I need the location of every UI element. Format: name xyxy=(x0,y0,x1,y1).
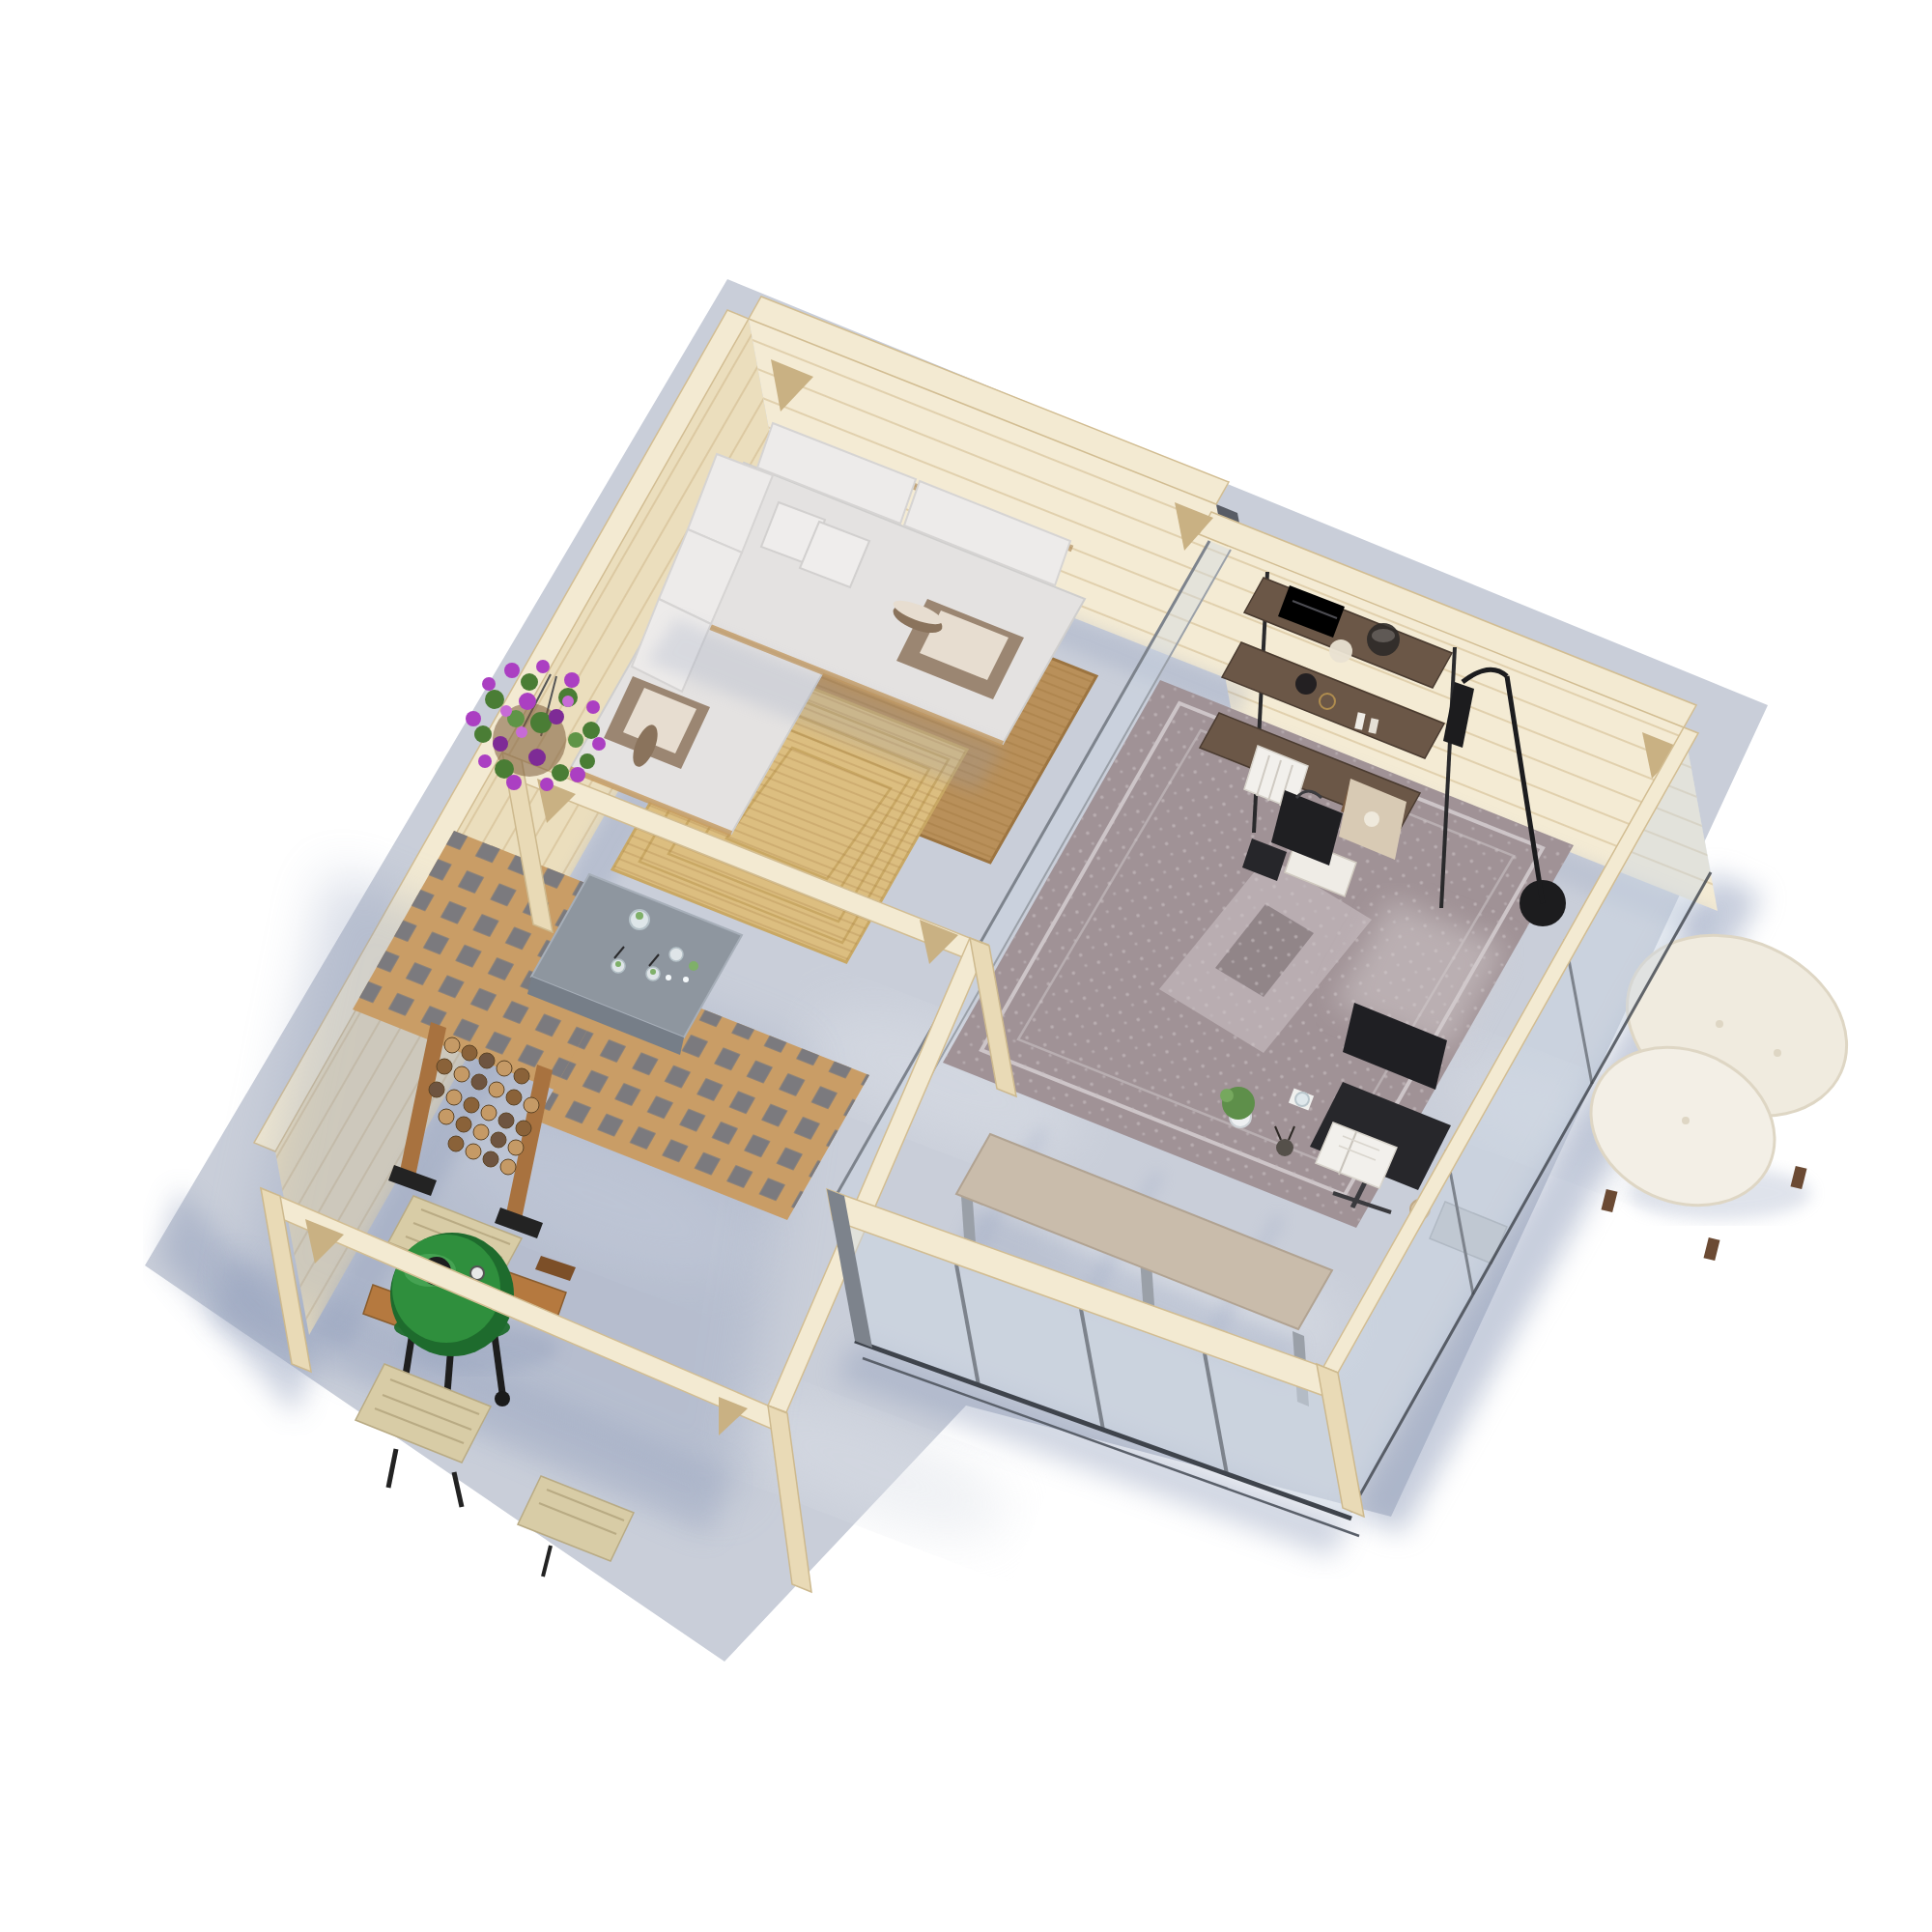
tuft xyxy=(1774,1049,1781,1057)
water-glass xyxy=(1295,1093,1309,1106)
grill-thermometer xyxy=(470,1266,484,1280)
ice-cube xyxy=(666,975,671,980)
lime-wedge xyxy=(689,961,698,971)
plant-leaf xyxy=(1220,1089,1234,1102)
render-canvas xyxy=(0,0,1932,1932)
black-vase xyxy=(1295,673,1317,695)
armchair-leg xyxy=(1602,1189,1618,1212)
glass-bowl-rim xyxy=(1372,629,1395,642)
bag-logo xyxy=(1364,811,1379,827)
pencil-cup xyxy=(1276,1139,1293,1156)
chair-leg xyxy=(543,1546,551,1577)
tuft xyxy=(1682,1117,1690,1124)
ice-cube xyxy=(683,977,689,982)
garden-house-aerial-render xyxy=(0,0,1932,1932)
tuft xyxy=(1716,1020,1723,1028)
lime-in-glass xyxy=(650,969,656,975)
pampas-vase xyxy=(1329,639,1352,663)
glass xyxy=(669,948,683,961)
chair-leg xyxy=(388,1449,396,1488)
lime-in-glass xyxy=(615,961,621,967)
armchair-leg xyxy=(1704,1237,1720,1261)
pitcher-mint xyxy=(636,912,643,920)
grill-wheel xyxy=(495,1391,510,1406)
